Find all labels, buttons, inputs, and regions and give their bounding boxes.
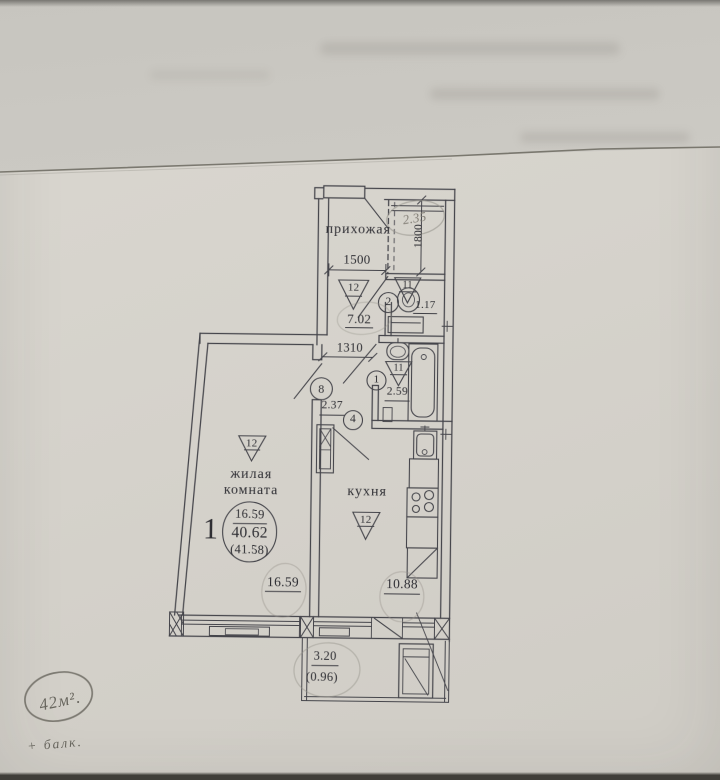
bathroom-vent-number: 11 (393, 364, 403, 374)
kitchen-fixtures (406, 321, 452, 579)
floor-plan: прихожая 1500 1800 2.35 12 7.02 2 11 1.1… (0, 0, 720, 780)
toilet-vent-number: 11 (402, 281, 412, 291)
floor-plan-drawing (0, 0, 720, 780)
circle-mark-2: 2 (385, 297, 391, 309)
bathroom-fixtures (383, 339, 438, 423)
apartment-total-area-with-balcony: (41.58) (230, 543, 269, 556)
living-room-label-line1: жилая (230, 468, 272, 483)
kitchen-label: кухня (347, 485, 387, 499)
closet-pencil-area: 2.35 (402, 210, 428, 227)
circle-mark-8: 8 (318, 383, 324, 395)
circle-mark-4: 4 (350, 414, 356, 426)
closet-depth-dimension: 1800 (413, 224, 425, 248)
corridor-area: 2.37 (319, 400, 345, 415)
hallway-vent-number: 12 (348, 283, 360, 294)
living-room-label-line2: комната (224, 484, 279, 499)
scanned-floor-plan-photo: прихожая 1500 1800 2.35 12 7.02 2 11 1.1… (0, 0, 720, 780)
hallway-label: прихожая (326, 223, 392, 238)
circle-mark-1: 1 (373, 375, 379, 387)
apartment-number: 1 (203, 514, 219, 544)
vent-shaft (316, 425, 334, 473)
living-room-area: 16.59 (265, 575, 301, 592)
kitchen-area: 10.88 (384, 577, 420, 594)
apartment-living-area: 16.59 (233, 508, 267, 524)
apartment-total-area: 40.62 (231, 525, 268, 541)
toilet-area: 1.17 (413, 300, 438, 314)
hallway-width-dimension: 1500 (343, 253, 370, 266)
living-room-vent-number: 12 (246, 438, 258, 449)
bathroom-area: 2.59 (385, 386, 411, 401)
balcony-coefficient: (0.96) (306, 670, 338, 683)
corridor-width-dimension: 1310 (337, 342, 363, 355)
balcony-area: 3.20 (311, 650, 338, 666)
kitchen-vent-number: 12 (360, 515, 372, 526)
hallway-area: 7.02 (345, 312, 373, 328)
windows (169, 615, 449, 639)
